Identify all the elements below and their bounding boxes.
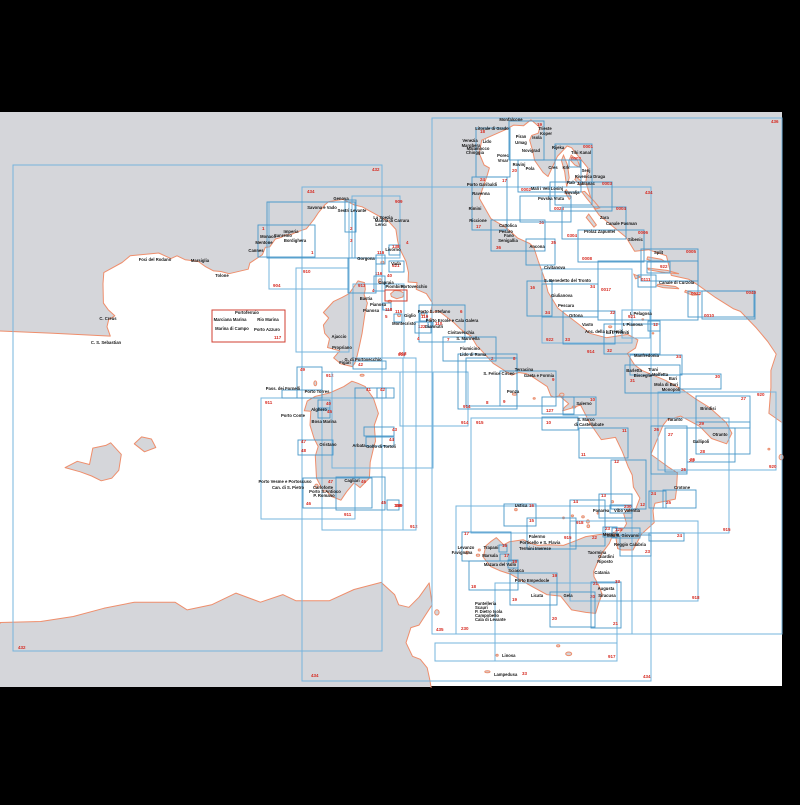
svg-text:Mali i Veli Losinj: Mali i Veli Losinj: [531, 186, 563, 191]
svg-text:Porto Ercole e Cala Galera: Porto Ercole e Cala Galera: [426, 318, 479, 323]
svg-text:20: 20: [512, 168, 518, 173]
svg-text:23: 23: [689, 458, 695, 463]
svg-text:0003: 0003: [602, 181, 613, 186]
svg-text:Sibenic: Sibenic: [628, 237, 644, 242]
svg-text:Sciacca: Sciacca: [508, 568, 524, 573]
svg-text:C. S. Sebastian: C. S. Sebastian: [91, 340, 122, 345]
svg-text:0017: 0017: [601, 287, 612, 292]
svg-text:Piran: Piran: [516, 134, 527, 139]
svg-text:Ortona: Ortona: [569, 313, 583, 318]
svg-text:Linosa: Linosa: [502, 653, 516, 658]
svg-text:18: 18: [471, 584, 477, 589]
svg-text:909: 909: [395, 199, 403, 204]
svg-text:12: 12: [653, 322, 659, 327]
svg-text:Vada: Vada: [391, 261, 401, 266]
svg-text:27: 27: [668, 432, 674, 437]
svg-text:Ravenna: Ravenna: [472, 191, 490, 196]
svg-text:Zara: Zara: [600, 215, 610, 220]
svg-text:C. Creus: C. Creus: [99, 316, 117, 321]
svg-text:Otranto: Otranto: [712, 432, 728, 437]
svg-text:Porto S. Stefano: Porto S. Stefano: [418, 309, 451, 314]
svg-text:12: 12: [640, 502, 646, 507]
svg-text:Pianosa: Pianosa: [363, 308, 380, 313]
svg-text:Golfo di Tortoli: Golfo di Tortoli: [366, 444, 396, 449]
svg-text:34: 34: [676, 354, 682, 359]
svg-text:48: 48: [301, 448, 307, 453]
svg-text:Monaco: Monaco: [260, 234, 276, 239]
svg-text:914: 914: [587, 349, 595, 354]
svg-text:Rimini: Rimini: [469, 206, 482, 211]
svg-text:27: 27: [741, 396, 747, 401]
svg-text:Siracusa: Siracusa: [598, 593, 616, 598]
svg-text:Riposto: Riposto: [597, 559, 613, 564]
svg-text:Ponza: Ponza: [507, 389, 520, 394]
svg-text:Novalja: Novalja: [565, 190, 581, 195]
svg-text:19: 19: [512, 597, 518, 602]
svg-text:Molfetta: Molfetta: [652, 372, 669, 377]
svg-text:31: 31: [630, 378, 636, 383]
svg-text:33: 33: [522, 671, 528, 676]
svg-text:0005: 0005: [686, 249, 697, 254]
svg-text:Marciana Marina: Marciana Marina: [214, 317, 247, 322]
svg-text:Porto Azzuro: Porto Azzuro: [254, 327, 280, 332]
svg-text:Rijeka: Rijeka: [552, 145, 565, 150]
svg-text:Arbata: Arbata: [352, 443, 366, 448]
svg-text:118: 118: [385, 307, 393, 312]
svg-text:26: 26: [654, 427, 660, 432]
svg-text:Termini Imerese: Termini Imerese: [519, 546, 551, 551]
svg-text:Sestri Levante: Sestri Levante: [338, 208, 367, 213]
svg-text:Catania: Catania: [594, 570, 610, 575]
svg-text:Monopoli: Monopoli: [662, 387, 681, 392]
svg-text:915: 915: [476, 420, 484, 425]
svg-text:I. Pianosa: I. Pianosa: [623, 322, 643, 327]
svg-text:Rovinj: Rovinj: [513, 162, 526, 167]
svg-text:42: 42: [358, 362, 364, 367]
svg-text:914: 914: [463, 404, 471, 409]
svg-text:17: 17: [504, 553, 510, 558]
svg-text:24: 24: [677, 533, 683, 538]
svg-text:Cannes: Cannes: [248, 248, 264, 253]
svg-text:16: 16: [529, 503, 535, 508]
svg-text:Villa S. Giovanni: Villa S. Giovanni: [607, 533, 640, 538]
svg-text:127: 127: [546, 408, 554, 413]
svg-text:33: 33: [615, 579, 621, 584]
svg-text:904: 904: [273, 283, 281, 288]
svg-text:29: 29: [699, 421, 705, 426]
svg-text:Bordighera: Bordighera: [284, 238, 307, 243]
svg-text:40: 40: [387, 273, 393, 278]
svg-text:43: 43: [392, 427, 398, 432]
svg-text:Mazara del Vallo: Mazara del Vallo: [484, 562, 517, 567]
svg-text:17: 17: [502, 178, 508, 183]
svg-text:30: 30: [715, 374, 721, 379]
svg-text:15: 15: [529, 518, 535, 523]
svg-text:Vibo Valentia: Vibo Valentia: [614, 508, 641, 513]
svg-text:Civitanova: Civitanova: [544, 265, 566, 270]
svg-text:Genova: Genova: [333, 196, 349, 201]
svg-text:913: 913: [358, 283, 366, 288]
svg-text:41: 41: [366, 387, 372, 392]
svg-text:435: 435: [436, 627, 444, 632]
svg-text:49: 49: [300, 367, 306, 372]
svg-text:Isola: Isola: [532, 135, 542, 140]
svg-text:Crotone: Crotone: [674, 485, 691, 490]
svg-text:Cala di Levante: Cala di Levante: [475, 617, 506, 622]
svg-text:Ustica: Ustica: [515, 503, 528, 508]
svg-text:Marsala: Marsala: [482, 553, 498, 558]
svg-text:Lampedusa: Lampedusa: [494, 672, 518, 677]
svg-text:Porto Empedocle: Porto Empedocle: [515, 578, 550, 583]
svg-text:922: 922: [660, 264, 668, 269]
svg-text:Porticello e S. Flavia: Porticello e S. Flavia: [520, 540, 561, 545]
svg-text:Manfredonia: Manfredonia: [634, 353, 660, 358]
svg-text:Giannutri: Giannutri: [425, 324, 444, 329]
svg-text:436: 436: [771, 119, 779, 124]
svg-text:Rio Marina: Rio Marina: [257, 317, 279, 322]
svg-text:Marina di Carrara: Marina di Carrara: [375, 218, 410, 223]
svg-text:34: 34: [590, 284, 596, 289]
svg-text:45: 45: [327, 409, 333, 414]
svg-text:Salerno: Salerno: [576, 401, 592, 406]
svg-text:Brindisi: Brindisi: [700, 406, 716, 411]
svg-text:35: 35: [551, 240, 557, 245]
svg-text:Krk: Krk: [563, 165, 571, 170]
svg-text:25: 25: [666, 500, 672, 505]
svg-text:Riccione: Riccione: [469, 218, 487, 223]
svg-text:Litorale di Grado: Litorale di Grado: [475, 126, 509, 131]
svg-text:Porto Torres: Porto Torres: [305, 389, 330, 394]
svg-text:11: 11: [581, 452, 586, 457]
svg-text:Pola: Pola: [526, 166, 536, 171]
svg-text:Povska Vrata: Povska Vrata: [538, 196, 565, 201]
svg-text:115: 115: [395, 309, 403, 314]
svg-text:Porto Vesme e Portoscuso: Porto Vesme e Portoscuso: [258, 479, 312, 484]
svg-text:Pass. dei Fornelli: Pass. dei Fornelli: [266, 386, 300, 391]
svg-text:40: 40: [326, 401, 332, 406]
svg-text:S. Felice Circeo: S. Felice Circeo: [483, 371, 515, 376]
svg-text:20: 20: [552, 616, 558, 621]
svg-text:Cattolica: Cattolica: [499, 223, 517, 228]
svg-text:36: 36: [539, 220, 545, 225]
svg-text:230: 230: [461, 626, 469, 631]
svg-text:16: 16: [502, 543, 508, 548]
svg-text:Gorgona: Gorgona: [357, 256, 375, 261]
svg-text:910: 910: [303, 269, 311, 274]
svg-text:Montecristo: Montecristo: [392, 321, 416, 326]
svg-text:Augusta: Augusta: [598, 586, 615, 591]
svg-text:Split: Split: [654, 250, 664, 255]
svg-text:36: 36: [496, 245, 502, 250]
svg-text:Giglio: Giglio: [404, 313, 416, 318]
svg-text:17: 17: [464, 531, 470, 536]
svg-text:Senj: Senj: [582, 168, 591, 173]
svg-text:32: 32: [610, 310, 616, 315]
svg-text:920: 920: [757, 392, 765, 397]
svg-text:913: 913: [399, 351, 407, 356]
svg-text:Licata: Licata: [531, 593, 544, 598]
svg-text:Bastia: Bastia: [360, 296, 373, 301]
svg-text:914: 914: [461, 420, 469, 425]
svg-text:47: 47: [301, 439, 307, 444]
svg-text:0111: 0111: [641, 277, 651, 282]
svg-text:Portoferraio: Portoferraio: [235, 310, 259, 315]
svg-text:Mentone: Mentone: [255, 240, 273, 245]
svg-text:Gela: Gela: [563, 593, 573, 598]
svg-text:47: 47: [328, 479, 334, 484]
svg-text:Gaeta e Formia: Gaeta e Formia: [524, 373, 555, 378]
svg-text:34: 34: [545, 310, 551, 315]
svg-text:I. Pelagosa: I. Pelagosa: [630, 311, 653, 316]
svg-text:912: 912: [410, 524, 418, 529]
svg-text:Prolaz Zapuntel: Prolaz Zapuntel: [584, 229, 615, 234]
svg-text:Reggio Calabria: Reggio Calabria: [614, 542, 647, 547]
svg-text:Terracina: Terracina: [515, 367, 534, 372]
svg-text:Jablanac: Jablanac: [577, 181, 596, 186]
svg-text:33: 33: [565, 337, 571, 342]
svg-text:Marsiglia: Marsiglia: [191, 258, 210, 263]
svg-text:26: 26: [681, 467, 687, 472]
svg-text:Tihi Kanal: Tihi Kanal: [571, 150, 591, 155]
svg-text:Novigrad: Novigrad: [522, 148, 541, 153]
svg-text:Figari: Figari: [339, 360, 350, 365]
svg-text:Taranto: Taranto: [667, 417, 682, 422]
svg-text:0040: 0040: [746, 290, 757, 295]
svg-text:Bisceglie: Bisceglie: [634, 373, 653, 378]
svg-text:0004: 0004: [616, 206, 627, 211]
svg-text:117: 117: [274, 335, 282, 340]
svg-text:16: 16: [530, 285, 536, 290]
svg-text:434: 434: [645, 190, 653, 195]
svg-text:Rab: Rab: [567, 180, 575, 185]
svg-text:Livorno: Livorno: [385, 247, 401, 252]
svg-text:Favignana: Favignana: [452, 550, 473, 555]
svg-text:di Castellabate: di Castellabate: [574, 422, 604, 427]
svg-text:Pianosa: Pianosa: [370, 302, 387, 307]
svg-text:S. Marinella: S. Marinella: [456, 336, 480, 341]
svg-text:434: 434: [307, 189, 315, 194]
svg-text:Lido di Roma: Lido di Roma: [460, 352, 487, 357]
svg-text:19: 19: [552, 573, 558, 578]
svg-text:Canale Pasman: Canale Pasman: [606, 221, 637, 226]
svg-text:Gallipoli: Gallipoli: [693, 439, 710, 444]
svg-text:920: 920: [769, 464, 777, 469]
svg-text:434: 434: [311, 673, 319, 678]
svg-text:Portovecchio: Portovecchio: [401, 284, 428, 289]
svg-text:911: 911: [344, 512, 352, 517]
svg-text:23: 23: [605, 526, 611, 531]
svg-text:Bari: Bari: [669, 376, 677, 381]
svg-text:28: 28: [700, 449, 706, 454]
svg-text:11: 11: [622, 428, 627, 433]
svg-text:432: 432: [18, 645, 26, 650]
svg-text:46: 46: [361, 479, 367, 484]
svg-text:Oristano: Oristano: [319, 442, 337, 447]
svg-text:Bosa Marina: Bosa Marina: [312, 419, 338, 424]
svg-text:S. Benedetto del Tronto: S. Benedetto del Tronto: [544, 278, 591, 283]
svg-text:Cagliari: Cagliari: [344, 478, 359, 483]
svg-text:Vasto: Vasto: [582, 322, 594, 327]
svg-text:Lido: Lido: [483, 139, 492, 144]
svg-text:Savona e Vado: Savona e Vado: [307, 205, 337, 210]
svg-text:Ajaccio: Ajaccio: [332, 334, 347, 339]
svg-text:Propriano: Propriano: [332, 345, 352, 350]
svg-text:159: 159: [395, 503, 403, 508]
svg-text:Cres: Cres: [548, 165, 558, 170]
svg-text:Monfalcone: Monfalcone: [499, 117, 523, 122]
svg-text:Pescara: Pescara: [558, 303, 575, 308]
svg-text:116: 116: [377, 250, 385, 255]
svg-text:918: 918: [692, 595, 700, 600]
svg-text:0304: 0304: [567, 233, 578, 238]
svg-text:Chioggia: Chioggia: [466, 150, 485, 155]
svg-text:21: 21: [613, 621, 619, 626]
svg-text:14: 14: [573, 499, 579, 504]
svg-text:Foci del Rodano: Foci del Rodano: [139, 257, 172, 262]
svg-text:32: 32: [607, 348, 613, 353]
svg-text:46: 46: [306, 501, 312, 506]
svg-text:42: 42: [380, 387, 386, 392]
svg-text:Koper: Koper: [540, 131, 552, 136]
svg-text:922: 922: [546, 337, 554, 342]
svg-text:da I. Tremiti: da I. Tremiti: [606, 330, 629, 335]
svg-text:0008: 0008: [582, 256, 593, 261]
svg-text:434: 434: [643, 674, 651, 679]
svg-text:24: 24: [651, 491, 657, 496]
svg-text:911: 911: [265, 400, 273, 405]
svg-text:Porto Garibaldi: Porto Garibaldi: [467, 182, 497, 187]
svg-text:Canale di Curzola: Canale di Curzola: [659, 280, 695, 285]
svg-text:Umag: Umag: [515, 140, 527, 145]
svg-text:Can. di S. Pietro: Can. di S. Pietro: [272, 485, 305, 490]
svg-text:Marina di Campo: Marina di Campo: [215, 326, 249, 331]
svg-text:Vrsar: Vrsar: [498, 158, 509, 163]
svg-text:23: 23: [645, 549, 651, 554]
svg-text:Tolone: Tolone: [215, 273, 229, 278]
svg-text:0010: 0010: [704, 313, 715, 318]
svg-text:44: 44: [389, 437, 395, 442]
svg-text:917: 917: [608, 654, 616, 659]
svg-text:Fiumicino: Fiumicino: [460, 346, 480, 351]
svg-text:P. Romano: P. Romano: [313, 493, 335, 498]
svg-text:915: 915: [723, 527, 731, 532]
svg-text:0001: 0001: [583, 144, 594, 149]
svg-text:Panarea: Panarea: [593, 508, 610, 513]
svg-text:12: 12: [614, 459, 620, 464]
svg-text:0006: 0006: [638, 230, 649, 235]
svg-text:22: 22: [592, 535, 598, 540]
svg-text:13: 13: [601, 493, 607, 498]
svg-text:Palermo: Palermo: [529, 534, 546, 539]
svg-text:0022: 0022: [691, 291, 702, 296]
svg-text:432: 432: [372, 167, 380, 172]
svg-text:Senigallia: Senigallia: [498, 238, 518, 243]
svg-text:918: 918: [576, 520, 584, 525]
svg-text:10: 10: [546, 420, 552, 425]
svg-text:915: 915: [564, 535, 572, 540]
svg-text:45: 45: [381, 500, 387, 505]
svg-text:17: 17: [476, 224, 482, 229]
svg-text:Alghero: Alghero: [311, 407, 327, 412]
svg-text:912: 912: [326, 373, 334, 378]
svg-text:Giulianova: Giulianova: [551, 293, 573, 298]
svg-text:Civitavecchia: Civitavecchia: [448, 330, 475, 335]
svg-text:Rivenica Draga: Rivenica Draga: [575, 174, 606, 179]
svg-text:Porto Conte: Porto Conte: [281, 413, 306, 418]
svg-text:Trapani: Trapani: [484, 545, 499, 550]
svg-text:Ancona: Ancona: [529, 244, 545, 249]
